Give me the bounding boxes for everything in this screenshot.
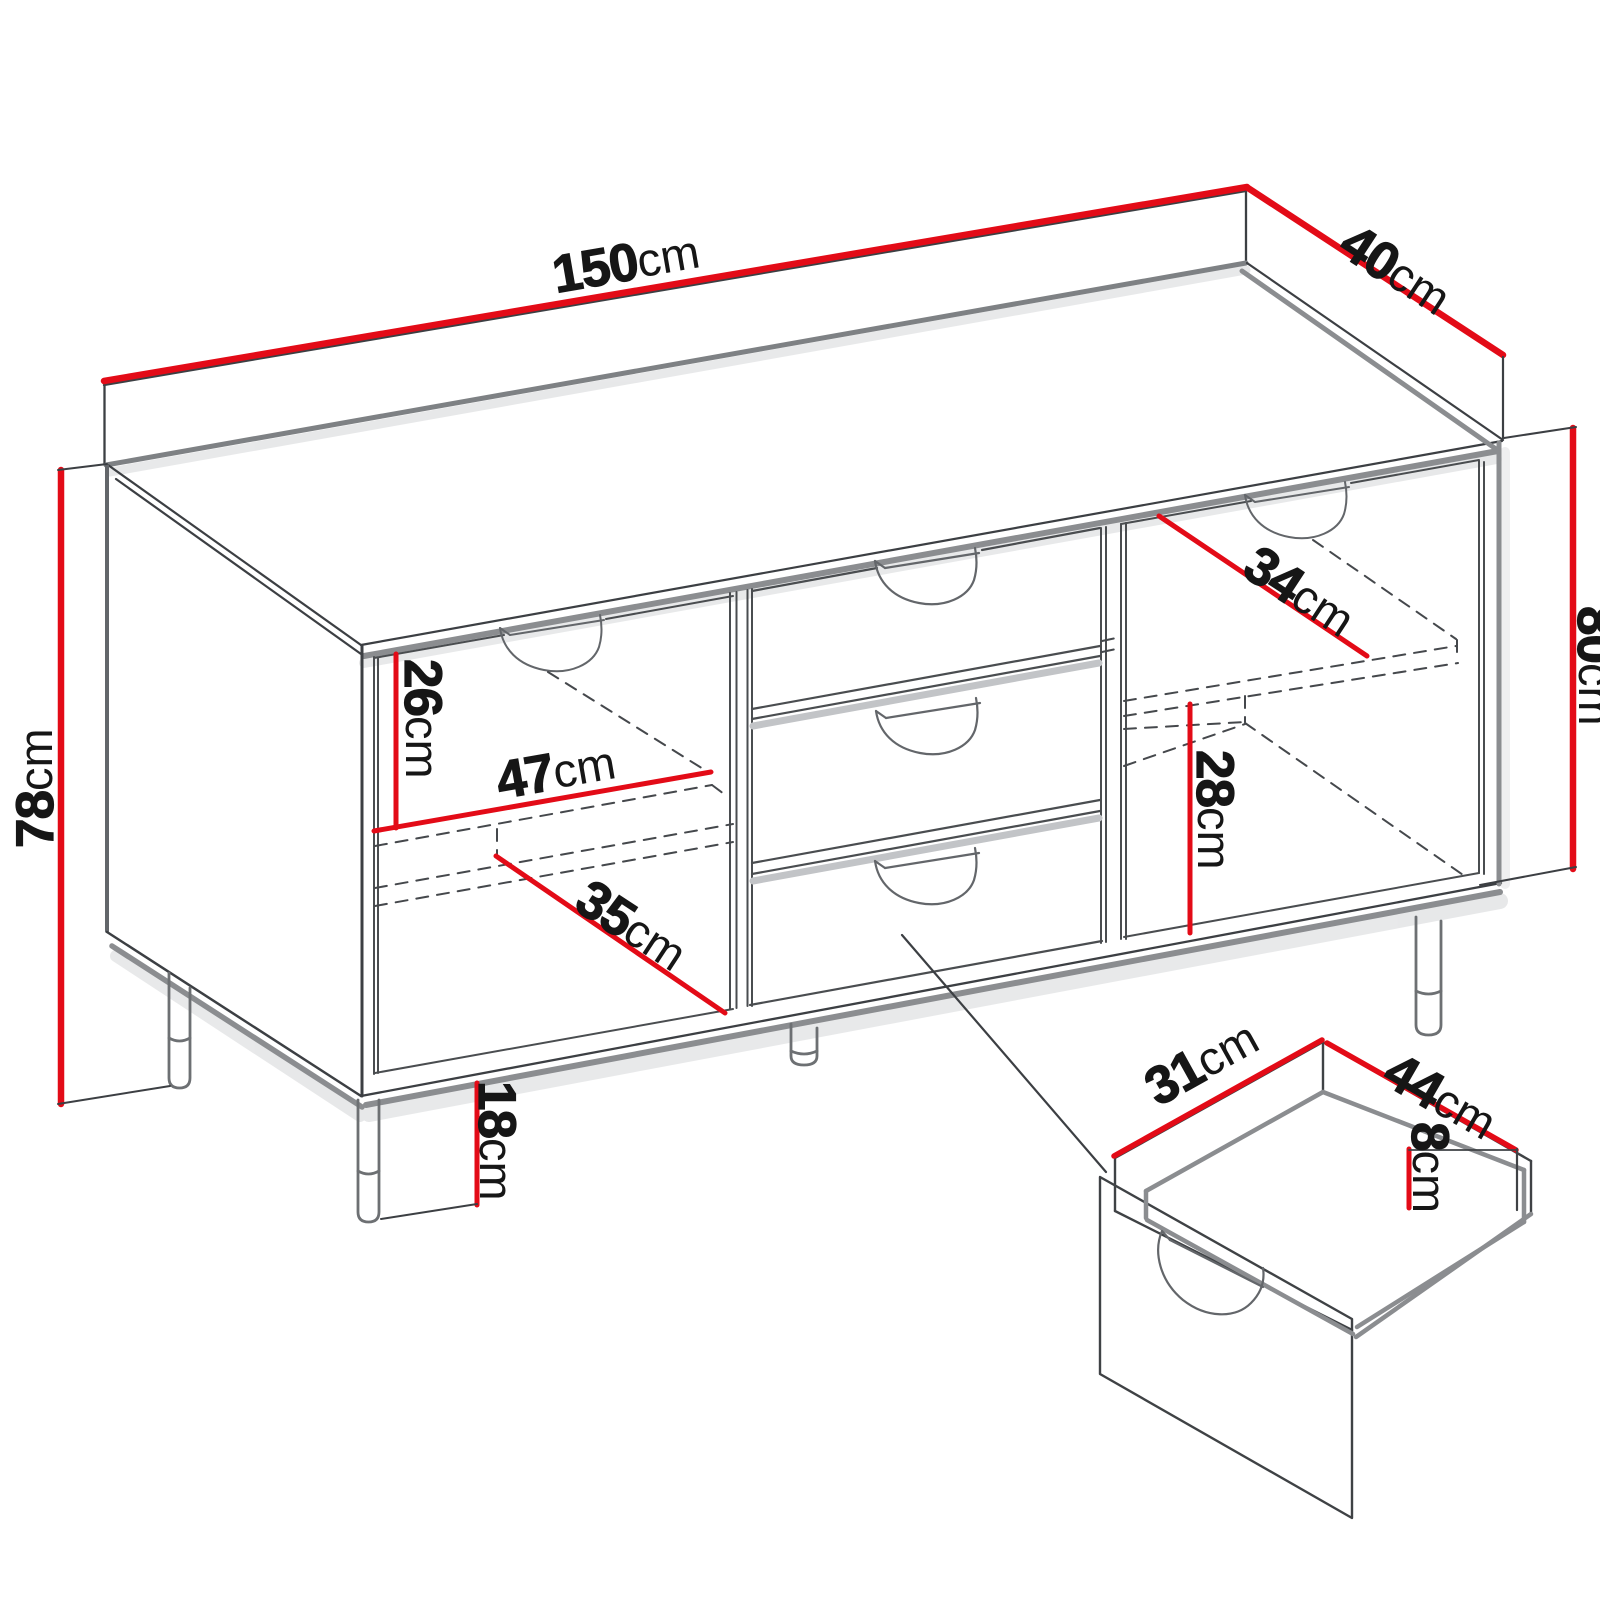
svg-text:34cm: 34cm — [1233, 535, 1365, 650]
svg-text:35cm: 35cm — [565, 869, 697, 984]
svg-text:31cm: 31cm — [1135, 1008, 1268, 1118]
svg-text:26cm: 26cm — [393, 659, 452, 779]
svg-text:47cm: 47cm — [492, 732, 620, 810]
svg-text:150cm: 150cm — [548, 221, 704, 304]
svg-text:8cm: 8cm — [1400, 1122, 1459, 1213]
svg-text:18cm: 18cm — [467, 1081, 526, 1201]
svg-text:80cm: 80cm — [1566, 606, 1600, 726]
svg-text:28cm: 28cm — [1185, 750, 1244, 870]
svg-text:40cm: 40cm — [1329, 213, 1461, 328]
svg-text:78cm: 78cm — [6, 728, 65, 848]
